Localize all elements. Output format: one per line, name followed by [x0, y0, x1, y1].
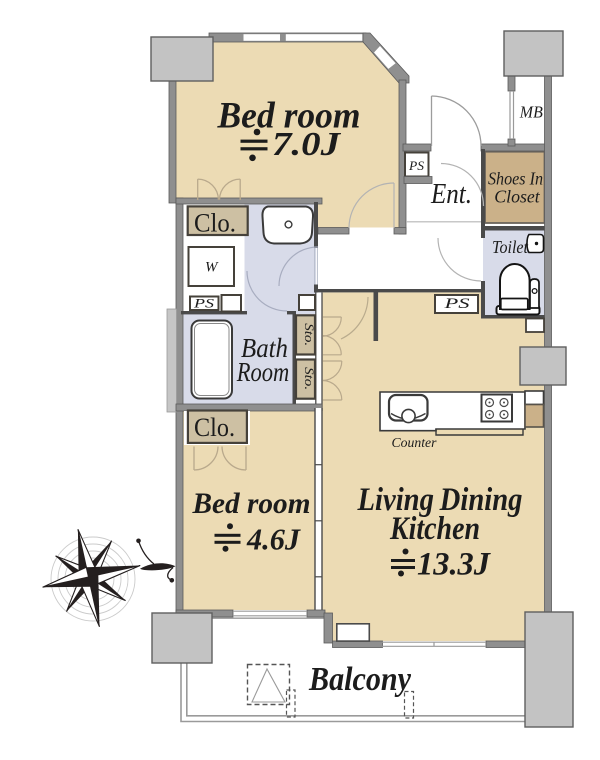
- svg-text:Kitchen: Kitchen: [389, 511, 480, 547]
- svg-text:7.0J: 7.0J: [272, 126, 341, 163]
- svg-text:Sto.: Sto.: [302, 367, 317, 390]
- svg-text:Ent.: Ent.: [430, 178, 472, 210]
- svg-text:Room: Room: [236, 357, 289, 387]
- svg-text:Clo.: Clo.: [194, 413, 235, 442]
- svg-text:MB: MB: [519, 103, 544, 122]
- svg-text:Toilet: Toilet: [492, 237, 529, 257]
- svg-text:Counter: Counter: [392, 435, 438, 450]
- svg-text:Balcony: Balcony: [308, 661, 412, 698]
- svg-text:13.3J: 13.3J: [417, 547, 491, 583]
- svg-text:Closet: Closet: [494, 187, 540, 207]
- svg-text:Bed room: Bed room: [192, 487, 311, 520]
- svg-text:Clo.: Clo.: [194, 209, 236, 238]
- svg-text:Sto.: Sto.: [302, 323, 317, 346]
- svg-text:4.6J: 4.6J: [246, 522, 301, 557]
- svg-text:PS: PS: [408, 159, 425, 173]
- svg-text:PS: PS: [193, 297, 216, 311]
- svg-text:W: W: [205, 260, 219, 276]
- svg-text:Shoes In: Shoes In: [488, 169, 543, 189]
- svg-text:PS: PS: [443, 296, 471, 312]
